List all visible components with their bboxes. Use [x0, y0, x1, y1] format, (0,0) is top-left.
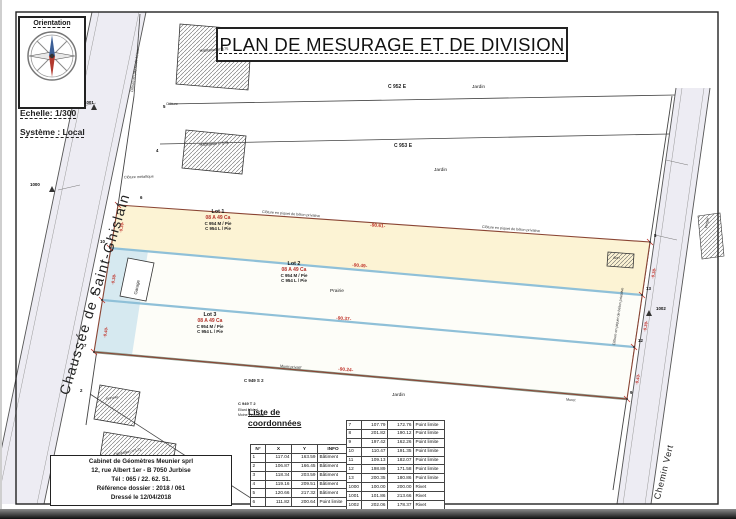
- point-8: 8: [654, 233, 656, 238]
- page-title: PLAN DE MESURAGE ET DE DIVISION: [219, 34, 564, 56]
- table-row: 12198.89171.58Point limite: [347, 465, 445, 474]
- lot1-cadastre-2: C 954 L / Pie: [186, 226, 250, 231]
- zone-jardin-top: Jardin: [472, 85, 485, 91]
- orientation-label: Orientation: [20, 20, 84, 27]
- coords-table-left: N° X Y INFO 1117.04163.59Bâtiment 2106.8…: [250, 444, 349, 507]
- zone-jardin-bottom: Jardin: [392, 393, 405, 399]
- dim-lot3-length: -90.37-: [336, 316, 352, 323]
- zone-prairie: Prairie: [330, 289, 344, 295]
- table-row: 9197.42162.26Point limite: [347, 438, 445, 447]
- coords-heading: Liste de coordonnées: [248, 407, 301, 430]
- point-1002: 1002: [656, 306, 666, 311]
- scan-edge-bottom: [0, 509, 736, 519]
- col-info: INFO: [318, 445, 349, 454]
- lot-strips: [94, 205, 650, 399]
- point-11: 11: [92, 291, 97, 296]
- scan-edge-left: [0, 0, 2, 519]
- lot3-cadastre-2: C 954 L / Pie: [178, 329, 242, 334]
- table-row: 1001101.86213.66Rivet: [347, 492, 445, 501]
- point-9: 9: [630, 390, 632, 395]
- lot2-cadastre-2: C 954 L / Pie: [262, 278, 326, 283]
- col-num: N°: [251, 445, 266, 454]
- label-abri: Abri: [613, 256, 620, 260]
- col-x: X: [266, 445, 292, 454]
- point-1000: 1000: [30, 182, 40, 187]
- point-10: 10: [100, 239, 105, 244]
- table-row: 4119.16209.51Bâtiment: [251, 480, 349, 489]
- parcel-c953: C 953 E: [394, 143, 412, 149]
- cabinet-date: Dressé le 12/04/2018: [51, 494, 231, 503]
- building-hab173: [182, 130, 246, 174]
- table-row: 8201.82190.12Point limite: [347, 429, 445, 438]
- label-muret: Muret: [566, 398, 576, 403]
- cabinet-name: Cabinet de Géomètres Meunier sprl: [51, 458, 231, 467]
- coords-heading-line2: coordonnées: [248, 418, 301, 429]
- col-y: Y: [292, 445, 318, 454]
- table-row: 10110.47191.35Point limite: [347, 447, 445, 456]
- point-5: 5: [163, 104, 165, 109]
- cabinet-address: 12, rue Albert 1er - B 7050 Jurbise: [51, 467, 231, 476]
- point-1001: 1001: [84, 100, 94, 105]
- label-cloture: Clôture: [166, 102, 178, 106]
- table-row: 1117.04163.59Bâtiment: [251, 453, 349, 462]
- dim-bottom-length: -90.24-: [338, 367, 354, 374]
- coords-heading-line1: Liste de: [248, 407, 301, 418]
- lot1-block: Lot 1 08 A 49 Ca C 954 M / Pie C 954 L /…: [186, 209, 250, 231]
- dim-lot2-length: -90.49-: [352, 263, 368, 270]
- title-box: PLAN DE MESURAGE ET DE DIVISION: [216, 27, 568, 62]
- table-row: 3118.34203.59Bâtiment: [251, 471, 349, 480]
- table-row: 1000100.00200.00Rivet: [347, 483, 445, 492]
- survey-plan-sheet: Orientation Echelle: 1/300 Système : Loc…: [0, 0, 736, 519]
- table-row: 13200.35180.86Point limite: [347, 474, 445, 483]
- point-6: 6: [140, 195, 142, 200]
- point-7: 7: [84, 343, 86, 348]
- point-2: 2: [80, 388, 82, 393]
- scale-label: Echelle: 1/300: [20, 108, 76, 118]
- zone-jardin-mid: Jardin: [434, 168, 447, 174]
- cabinet-phone: Tél : 065 / 22. 62. 51.: [51, 476, 231, 485]
- surveyor-info-box: Cabinet de Géomètres Meunier sprl 12, ru…: [50, 455, 232, 506]
- building-abri: [607, 252, 634, 268]
- dim-lot1-length: -90.61-: [370, 223, 386, 230]
- lot2-block: Lot 2 08 A 49 Ca C 954 M / Pie C 954 L /…: [262, 261, 326, 283]
- system-label: Système : Local: [20, 127, 85, 137]
- lot3-block: Lot 3 08 A 49 Ca C 954 M / Pie C 954 L /…: [178, 312, 242, 334]
- table-row: 11109.13182.07Point limite: [347, 456, 445, 465]
- orientation-box: Orientation: [18, 16, 86, 109]
- table-row: 5120.66217.32Bâtiment: [251, 489, 349, 498]
- point-4: 4: [156, 148, 158, 153]
- table-row: 7107.79172.76Point limite: [347, 421, 445, 430]
- verger-patch: [698, 213, 724, 259]
- table-row: 2106.87166.45Bâtiment: [251, 462, 349, 471]
- cabinet-reference: Référence dossier : 2018 / 061: [51, 485, 231, 494]
- compass-rose-icon: [25, 29, 79, 83]
- coords-table-right: 7107.79172.76Point limite 8201.82190.12P…: [346, 420, 445, 510]
- point-12: 12: [638, 338, 643, 343]
- coords-header-row: N° X Y INFO: [251, 445, 349, 454]
- parcel-c949s: C 949 S 2: [244, 378, 264, 383]
- table-row: 6111.82200.64Point limite: [251, 498, 349, 507]
- parcel-c952: C 952 E: [388, 84, 406, 90]
- point-13: 13: [646, 286, 651, 291]
- building-annexe: [94, 385, 140, 426]
